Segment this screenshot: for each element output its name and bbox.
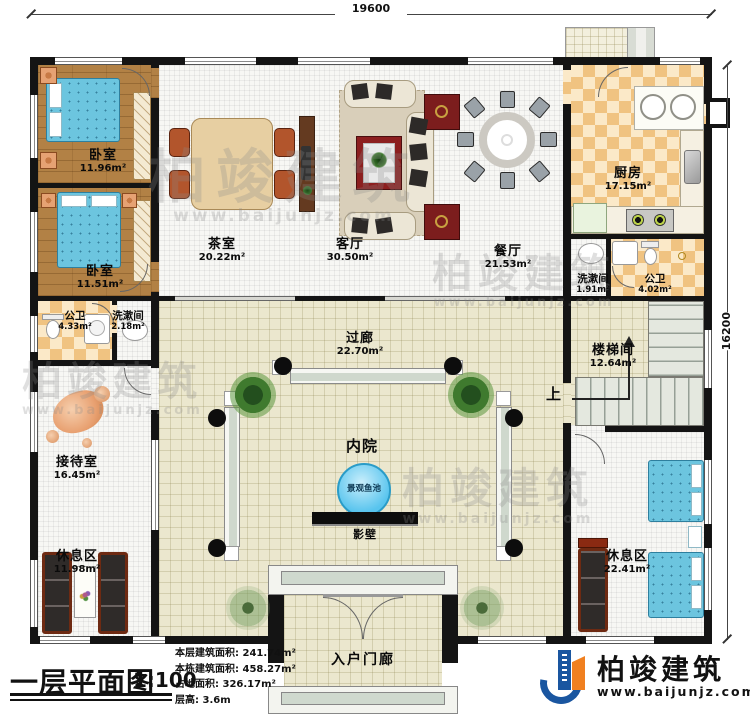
pillow bbox=[691, 557, 702, 581]
column bbox=[208, 409, 226, 427]
stats-line: 占地面积: 326.17m² bbox=[175, 677, 296, 693]
room-label-washroom-left: 洗漱间2.18m² bbox=[97, 310, 159, 332]
cushion bbox=[375, 83, 393, 100]
wall bbox=[38, 183, 151, 188]
room-area: 11.98m² bbox=[27, 564, 127, 576]
chair bbox=[169, 170, 190, 199]
door-threshold bbox=[323, 594, 403, 597]
chair bbox=[169, 128, 190, 157]
sink bbox=[578, 243, 604, 264]
colonnade-beam bbox=[290, 368, 446, 384]
chair bbox=[457, 132, 474, 147]
room-area: 1.91m² bbox=[565, 285, 621, 295]
window bbox=[55, 57, 122, 65]
pillow bbox=[49, 83, 62, 108]
potted-plant bbox=[230, 372, 276, 418]
armchair-medallion bbox=[435, 105, 448, 118]
shrub bbox=[460, 586, 504, 630]
chair bbox=[500, 172, 515, 189]
room-label-screen-wall: 影壁 bbox=[343, 529, 387, 542]
column bbox=[505, 409, 523, 427]
room-area: 22.41m² bbox=[577, 564, 677, 576]
column bbox=[274, 357, 292, 375]
towel-ring bbox=[678, 252, 686, 260]
nightstand bbox=[122, 193, 137, 208]
window bbox=[478, 636, 546, 644]
window bbox=[30, 316, 38, 352]
window bbox=[298, 57, 370, 65]
room-area: 20.22m² bbox=[172, 252, 272, 264]
room-name: 内院 bbox=[312, 438, 412, 456]
room-label-entry-porch: 入户门廊 bbox=[295, 652, 431, 669]
kitchen-sink bbox=[684, 150, 701, 184]
column-base bbox=[496, 391, 511, 406]
nightstand bbox=[40, 67, 57, 84]
side-cabinet bbox=[578, 538, 608, 548]
room-name: 过廊 bbox=[310, 331, 410, 346]
roof-extension bbox=[565, 27, 629, 61]
room-area: 12.64m² bbox=[563, 358, 663, 370]
tea-table bbox=[191, 118, 273, 210]
column bbox=[505, 539, 523, 557]
landscape-stone bbox=[94, 386, 110, 402]
right-dimension-line bbox=[727, 66, 728, 640]
pillow bbox=[61, 195, 87, 207]
cushion bbox=[409, 143, 428, 161]
window bbox=[704, 330, 712, 388]
brand-logo bbox=[540, 648, 592, 710]
chair bbox=[274, 128, 295, 157]
room-label-dining-room: 餐厅21.53m² bbox=[458, 244, 558, 271]
room-area: 2.18m² bbox=[97, 322, 159, 332]
window bbox=[30, 95, 38, 158]
door-opening bbox=[571, 425, 605, 432]
interior-window bbox=[151, 440, 159, 530]
stats-line: 本栋建筑面积: 458.27m² bbox=[175, 662, 296, 678]
right-dimension-value: 16200 bbox=[720, 312, 733, 350]
sliding-door bbox=[385, 296, 505, 301]
room-name: 洗漱间 bbox=[97, 310, 159, 322]
vanity bbox=[612, 241, 638, 265]
toilet-bowl bbox=[644, 248, 657, 265]
room-name: 公卫 bbox=[622, 273, 688, 285]
window bbox=[30, 392, 38, 452]
title-underline bbox=[10, 699, 172, 701]
room-name: 厨房 bbox=[578, 166, 678, 181]
nightstand bbox=[40, 152, 57, 169]
room-name: 入户门廊 bbox=[295, 652, 431, 669]
fridge bbox=[573, 203, 607, 233]
room-label-kitchen: 厨房17.15m² bbox=[578, 166, 678, 193]
room-label-lounge-right: 休息区22.41m² bbox=[577, 549, 677, 576]
cushion bbox=[351, 217, 368, 234]
door-opening bbox=[151, 68, 159, 98]
nightstand bbox=[688, 526, 702, 548]
room-name: 景观鱼池 bbox=[335, 484, 393, 494]
column bbox=[444, 357, 462, 375]
room-label-corridor: 过廊22.70m² bbox=[310, 331, 410, 358]
room-label-bedroom-1: 卧室11.96m² bbox=[56, 148, 150, 175]
floor-plan-sheet: 19600 16200 bbox=[0, 0, 750, 719]
window bbox=[704, 460, 712, 524]
logo-building-icon bbox=[572, 656, 585, 690]
porch-step-inner bbox=[281, 692, 445, 705]
room-area: 16.45m² bbox=[27, 470, 127, 482]
room-label-lounge-left: 休息区11.98m² bbox=[27, 549, 127, 576]
stair-arrow-line bbox=[572, 398, 630, 400]
porch-floor bbox=[284, 595, 442, 687]
porch-pier bbox=[442, 595, 458, 663]
pillow bbox=[91, 195, 117, 207]
column-base bbox=[224, 546, 239, 561]
pillow bbox=[691, 585, 702, 609]
stats-line: 层高: 3.6m bbox=[175, 693, 296, 709]
roof-extension-flue bbox=[627, 27, 655, 61]
room-label-living-room: 客厅30.50m² bbox=[300, 237, 400, 264]
chair bbox=[540, 132, 557, 147]
room-name: 楼梯间 bbox=[563, 343, 663, 358]
room-name: 影壁 bbox=[343, 529, 387, 542]
cushion bbox=[351, 83, 369, 100]
room-label-courtyard: 内院 bbox=[312, 438, 412, 456]
brand-name: 柏竣建筑 bbox=[597, 648, 725, 688]
chair bbox=[500, 91, 515, 108]
room-label-tea-room: 茶室20.22m² bbox=[172, 237, 272, 264]
room-name: 洗漱间 bbox=[565, 273, 621, 285]
kitchen-basin bbox=[640, 94, 666, 120]
room-label-stair-hall: 楼梯间12.64m² bbox=[563, 343, 663, 370]
screen-wall bbox=[312, 512, 418, 526]
pillow bbox=[691, 464, 702, 488]
fish-pond-label: 景观鱼池 bbox=[335, 484, 393, 494]
stats-block: 本层建筑面积: 241.74m² 本栋建筑面积: 458.27m² 占地面积: … bbox=[175, 646, 296, 708]
door-opening bbox=[151, 368, 159, 410]
room-name: 卧室 bbox=[53, 264, 147, 279]
landscape-stone bbox=[82, 438, 92, 448]
window bbox=[30, 212, 38, 272]
column bbox=[208, 539, 226, 557]
porch-step-inner bbox=[281, 571, 445, 585]
room-name: 休息区 bbox=[577, 549, 677, 564]
door-opening bbox=[151, 262, 159, 292]
room-label-bedroom-2: 卧室11.51m² bbox=[53, 264, 147, 291]
room-area: 21.53m² bbox=[458, 259, 558, 271]
nightstand bbox=[41, 193, 56, 208]
stats-line: 本层建筑面积: 241.74m² bbox=[175, 646, 296, 662]
stair-flight bbox=[575, 377, 704, 426]
room-name: 接待室 bbox=[27, 455, 127, 470]
flowers bbox=[78, 588, 92, 602]
tv bbox=[301, 146, 311, 180]
window bbox=[468, 57, 553, 65]
pillow bbox=[49, 112, 62, 137]
top-dimension-value: 19600 bbox=[335, 2, 407, 15]
door-opening bbox=[563, 70, 571, 104]
window bbox=[704, 548, 712, 610]
pillow bbox=[691, 492, 702, 516]
plant-small bbox=[303, 186, 312, 195]
kitchen-basin bbox=[670, 94, 696, 120]
room-area: 11.96m² bbox=[56, 163, 150, 175]
room-area: 11.51m² bbox=[53, 279, 147, 291]
room-name: 休息区 bbox=[27, 549, 127, 564]
room-name: 餐厅 bbox=[458, 244, 558, 259]
wall bbox=[38, 296, 704, 301]
window bbox=[586, 636, 654, 644]
room-name: 卧室 bbox=[56, 148, 150, 163]
landscape-stone bbox=[46, 430, 59, 443]
brand-url: www.baijunjz.com bbox=[597, 684, 750, 699]
room-area: 30.50m² bbox=[300, 252, 400, 264]
plant-small bbox=[371, 152, 387, 168]
sliding-door bbox=[175, 296, 295, 301]
room-name: 客厅 bbox=[300, 237, 400, 252]
stairs-up-label: 上 bbox=[543, 386, 565, 404]
window bbox=[133, 636, 165, 644]
cushion bbox=[409, 169, 428, 187]
potted-plant bbox=[448, 372, 494, 418]
window bbox=[185, 57, 256, 65]
room-label-washroom-right: 洗漱间1.91m² bbox=[565, 273, 621, 295]
colonnade-beam bbox=[496, 407, 512, 547]
window bbox=[40, 636, 90, 644]
cushion bbox=[375, 217, 393, 234]
burner bbox=[654, 214, 666, 226]
dining-table-center bbox=[501, 134, 513, 146]
toilet-tank bbox=[641, 241, 659, 248]
colonnade-beam bbox=[224, 407, 240, 547]
room-name: 茶室 bbox=[172, 237, 272, 252]
wall bbox=[38, 360, 159, 366]
room-area: 4.02m² bbox=[622, 285, 688, 295]
room-area: 22.70m² bbox=[310, 346, 410, 358]
shrub bbox=[226, 586, 270, 630]
room-label-reception: 接待室16.45m² bbox=[27, 455, 127, 482]
chair bbox=[274, 170, 295, 199]
armchair-medallion bbox=[435, 215, 448, 228]
window bbox=[660, 57, 700, 65]
cushion bbox=[409, 117, 429, 136]
logo-building-windows bbox=[562, 654, 567, 684]
burner bbox=[632, 214, 644, 226]
title-underline bbox=[10, 693, 172, 696]
room-label-toilet-right: 公卫4.02m² bbox=[622, 273, 688, 295]
room-area: 17.15m² bbox=[578, 181, 678, 193]
